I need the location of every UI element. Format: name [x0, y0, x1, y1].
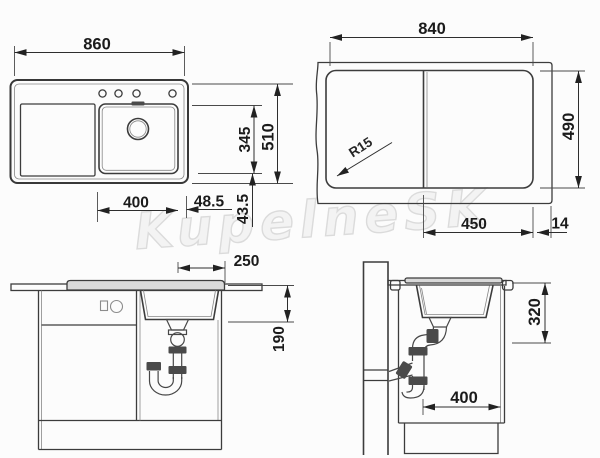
overflow-slot [132, 102, 145, 106]
dim-label-400-bottom: 400 [450, 389, 478, 407]
dim-label-320: 320 [526, 298, 544, 326]
sink-rim-side [405, 278, 502, 283]
dim-label-510: 510 [260, 123, 278, 151]
dim-label-840: 840 [418, 20, 446, 38]
dim-label-450: 450 [461, 216, 487, 233]
dim-label-345: 345 [237, 126, 254, 152]
dim-label-490: 490 [560, 113, 578, 141]
dim-label-860: 860 [83, 36, 111, 54]
sink-rim-profile [67, 281, 225, 291]
dim-label-190: 190 [271, 326, 288, 352]
sink-dimension-drawing: KupelneSK 860 510 [0, 0, 600, 458]
dim-label-48-5: 48.5 [194, 194, 225, 211]
dim-label-400-top: 400 [123, 195, 149, 212]
technical-drawing-sheet: KupelneSK 860 510 [0, 0, 600, 458]
dim-label-43-5: 43.5 [235, 194, 252, 225]
dim-label-14: 14 [551, 216, 569, 233]
dim-label-250: 250 [234, 253, 260, 270]
